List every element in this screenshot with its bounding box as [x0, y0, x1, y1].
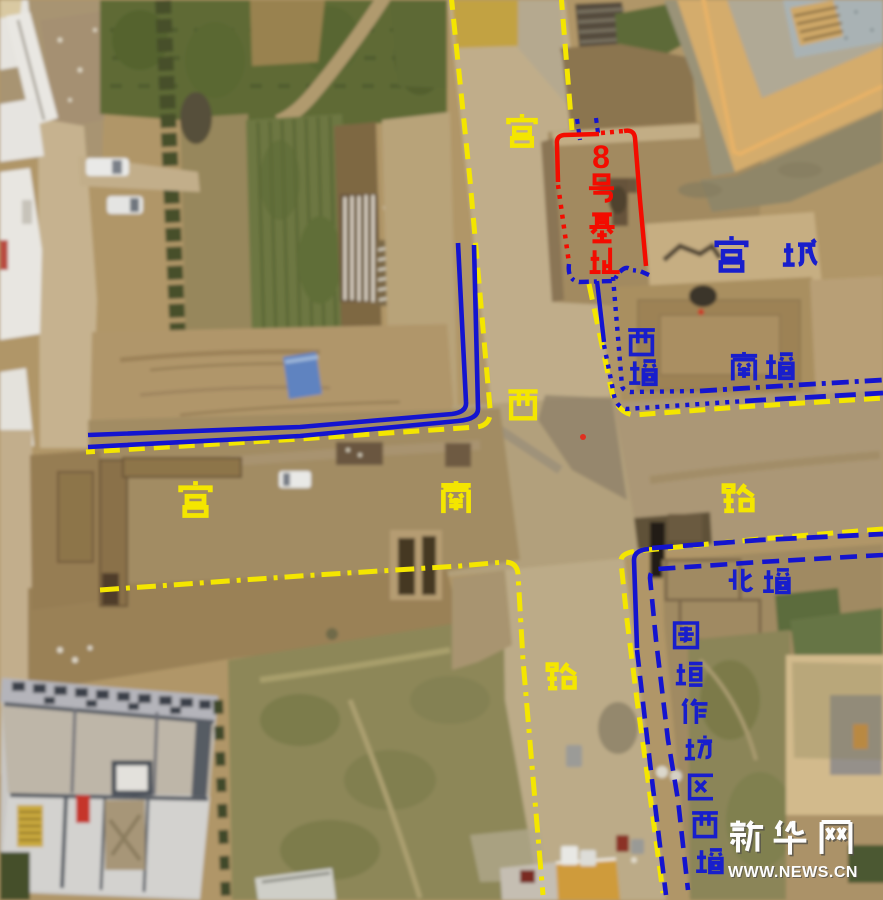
- svg-text:8: 8: [592, 139, 610, 175]
- svg-text:WWW.NEWS.CN: WWW.NEWS.CN: [728, 864, 858, 881]
